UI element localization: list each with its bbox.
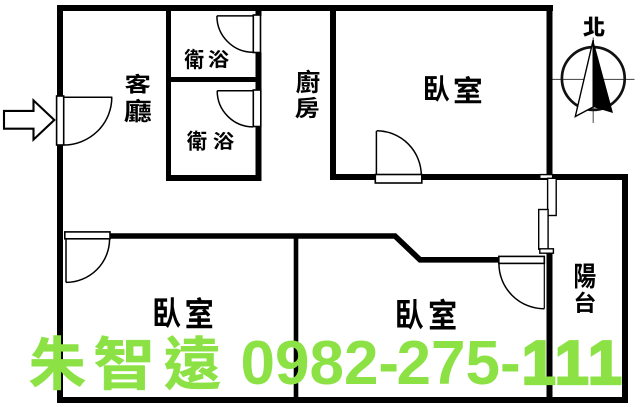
svg-text:111: 111 [522, 329, 625, 398]
svg-text:275-: 275- [397, 329, 521, 398]
svg-text:0982-: 0982- [241, 329, 400, 398]
